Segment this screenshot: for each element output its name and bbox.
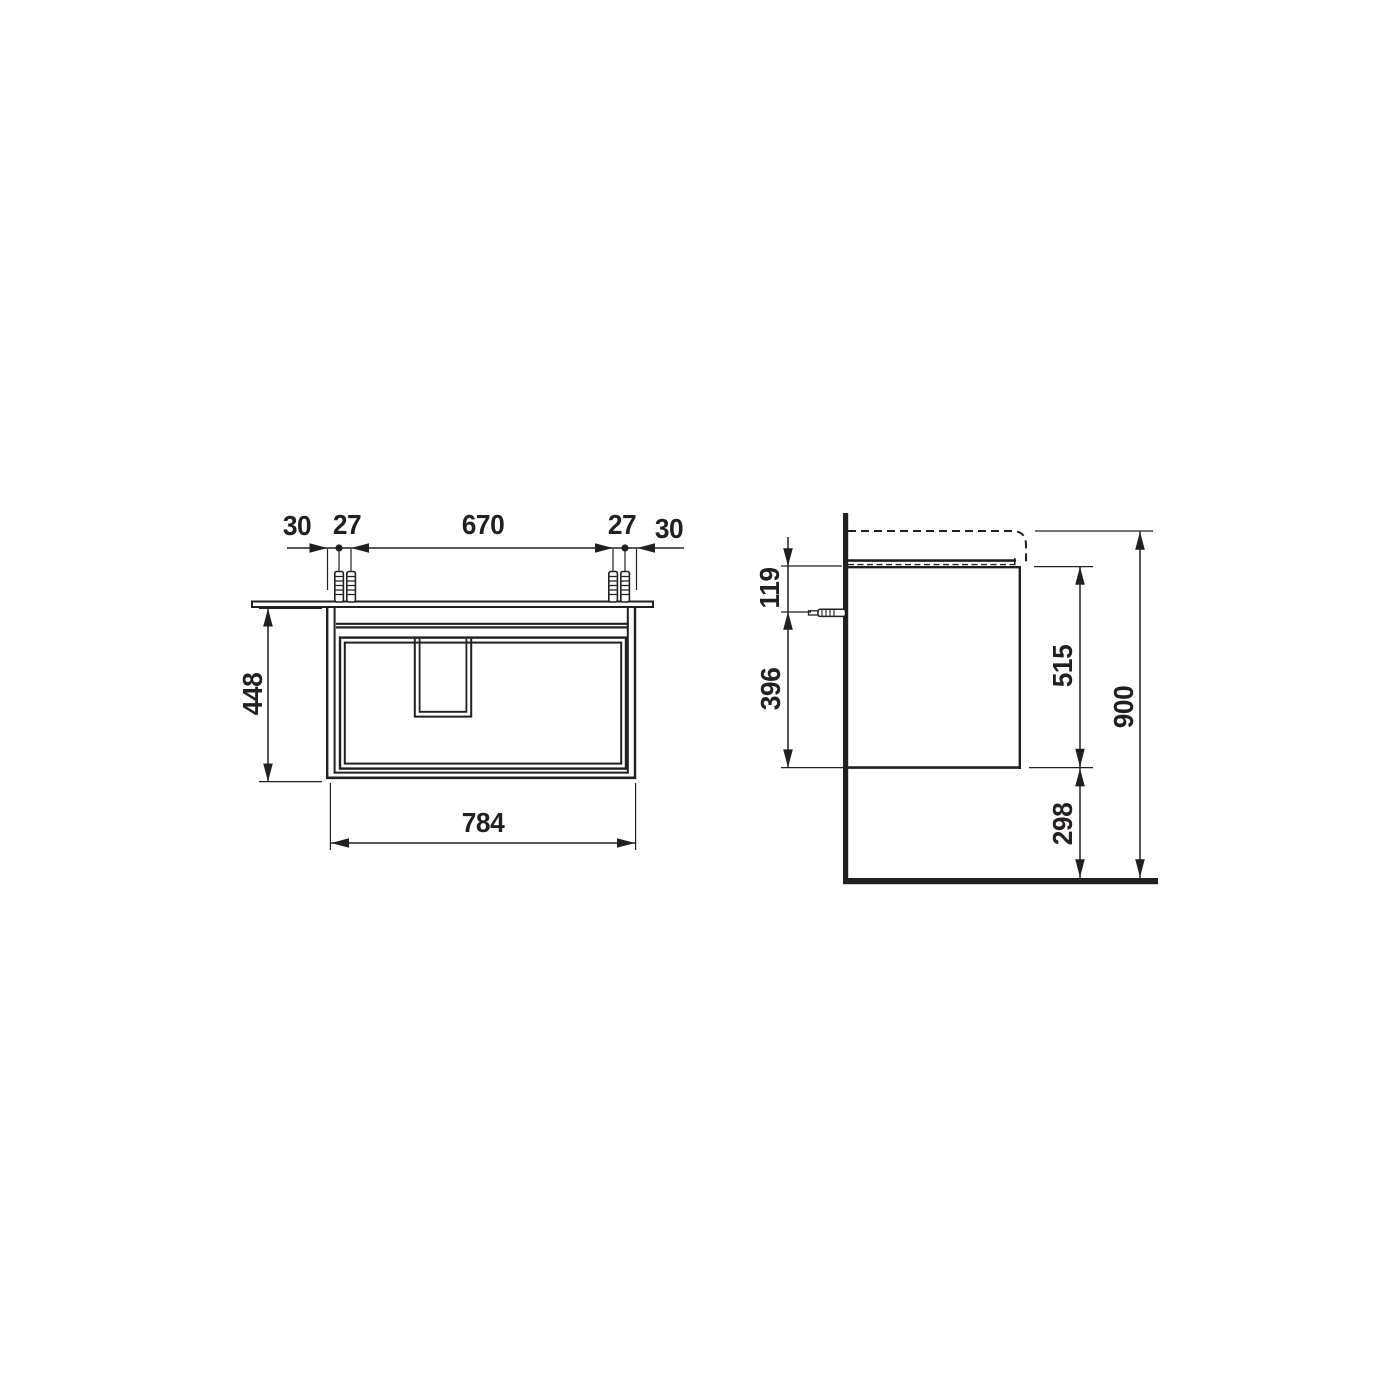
dim-label-298: 298 (1047, 803, 1079, 846)
arrowhead-icon (1135, 532, 1145, 550)
wall-anchor-icon (335, 572, 344, 603)
arrowhead-icon (310, 543, 328, 553)
wall-anchor-icon (609, 572, 618, 603)
drawing-linework (0, 0, 1400, 1400)
dim-label-784: 784 (462, 807, 505, 839)
arrowhead-icon (1075, 567, 1085, 585)
drawer-front-inner (345, 643, 621, 764)
dim-label-119: 119 (754, 567, 786, 608)
dim-label-27-left: 27 (333, 509, 361, 541)
dim-label-30-right: 30 (655, 513, 683, 545)
arrowhead-icon (1075, 859, 1085, 877)
dim-label-448: 448 (237, 673, 269, 716)
washbasin-dashed-outline (848, 531, 1026, 562)
arrowhead-icon (331, 838, 349, 848)
dim-label-396: 396 (755, 668, 787, 711)
front-view (252, 543, 684, 850)
arrowhead-icon (595, 543, 613, 553)
arrowhead-icon (1075, 749, 1085, 767)
arrowhead-icon (1075, 768, 1085, 786)
wall-anchor-icon (347, 572, 356, 603)
dim-label-900: 900 (1108, 686, 1140, 729)
arrowhead-icon (263, 764, 273, 782)
arrowhead-icon (783, 548, 793, 566)
arrowhead-icon (783, 612, 793, 630)
dim-boundary-dot (335, 544, 342, 551)
dim-label-670: 670 (462, 509, 505, 541)
wall-anchor-icon (809, 609, 846, 616)
arrowhead-icon (263, 609, 273, 627)
arrowhead-icon (351, 543, 369, 553)
floor-line (843, 878, 1158, 884)
arrowhead-icon (617, 838, 635, 848)
drawer-front-outer (340, 638, 626, 769)
countertop-edge (252, 602, 653, 608)
technical-drawing-canvas: 30 27 670 27 30 448 784 119 396 515 298 … (0, 0, 1400, 1400)
dim-label-515: 515 (1047, 645, 1079, 688)
dim-label-30-left: 30 (283, 510, 311, 542)
arrowhead-icon (783, 749, 793, 767)
arrowhead-icon (1135, 859, 1145, 877)
side-view (781, 513, 1158, 884)
siphon-cutout-inner (420, 639, 467, 712)
wall-line (843, 513, 848, 884)
arrowhead-icon (637, 543, 655, 553)
siphon-cutout-outer (415, 639, 471, 717)
dim-boundary-dot (621, 544, 628, 551)
dim-label-27-right: 27 (608, 509, 636, 541)
wall-anchor-icon (621, 572, 630, 603)
